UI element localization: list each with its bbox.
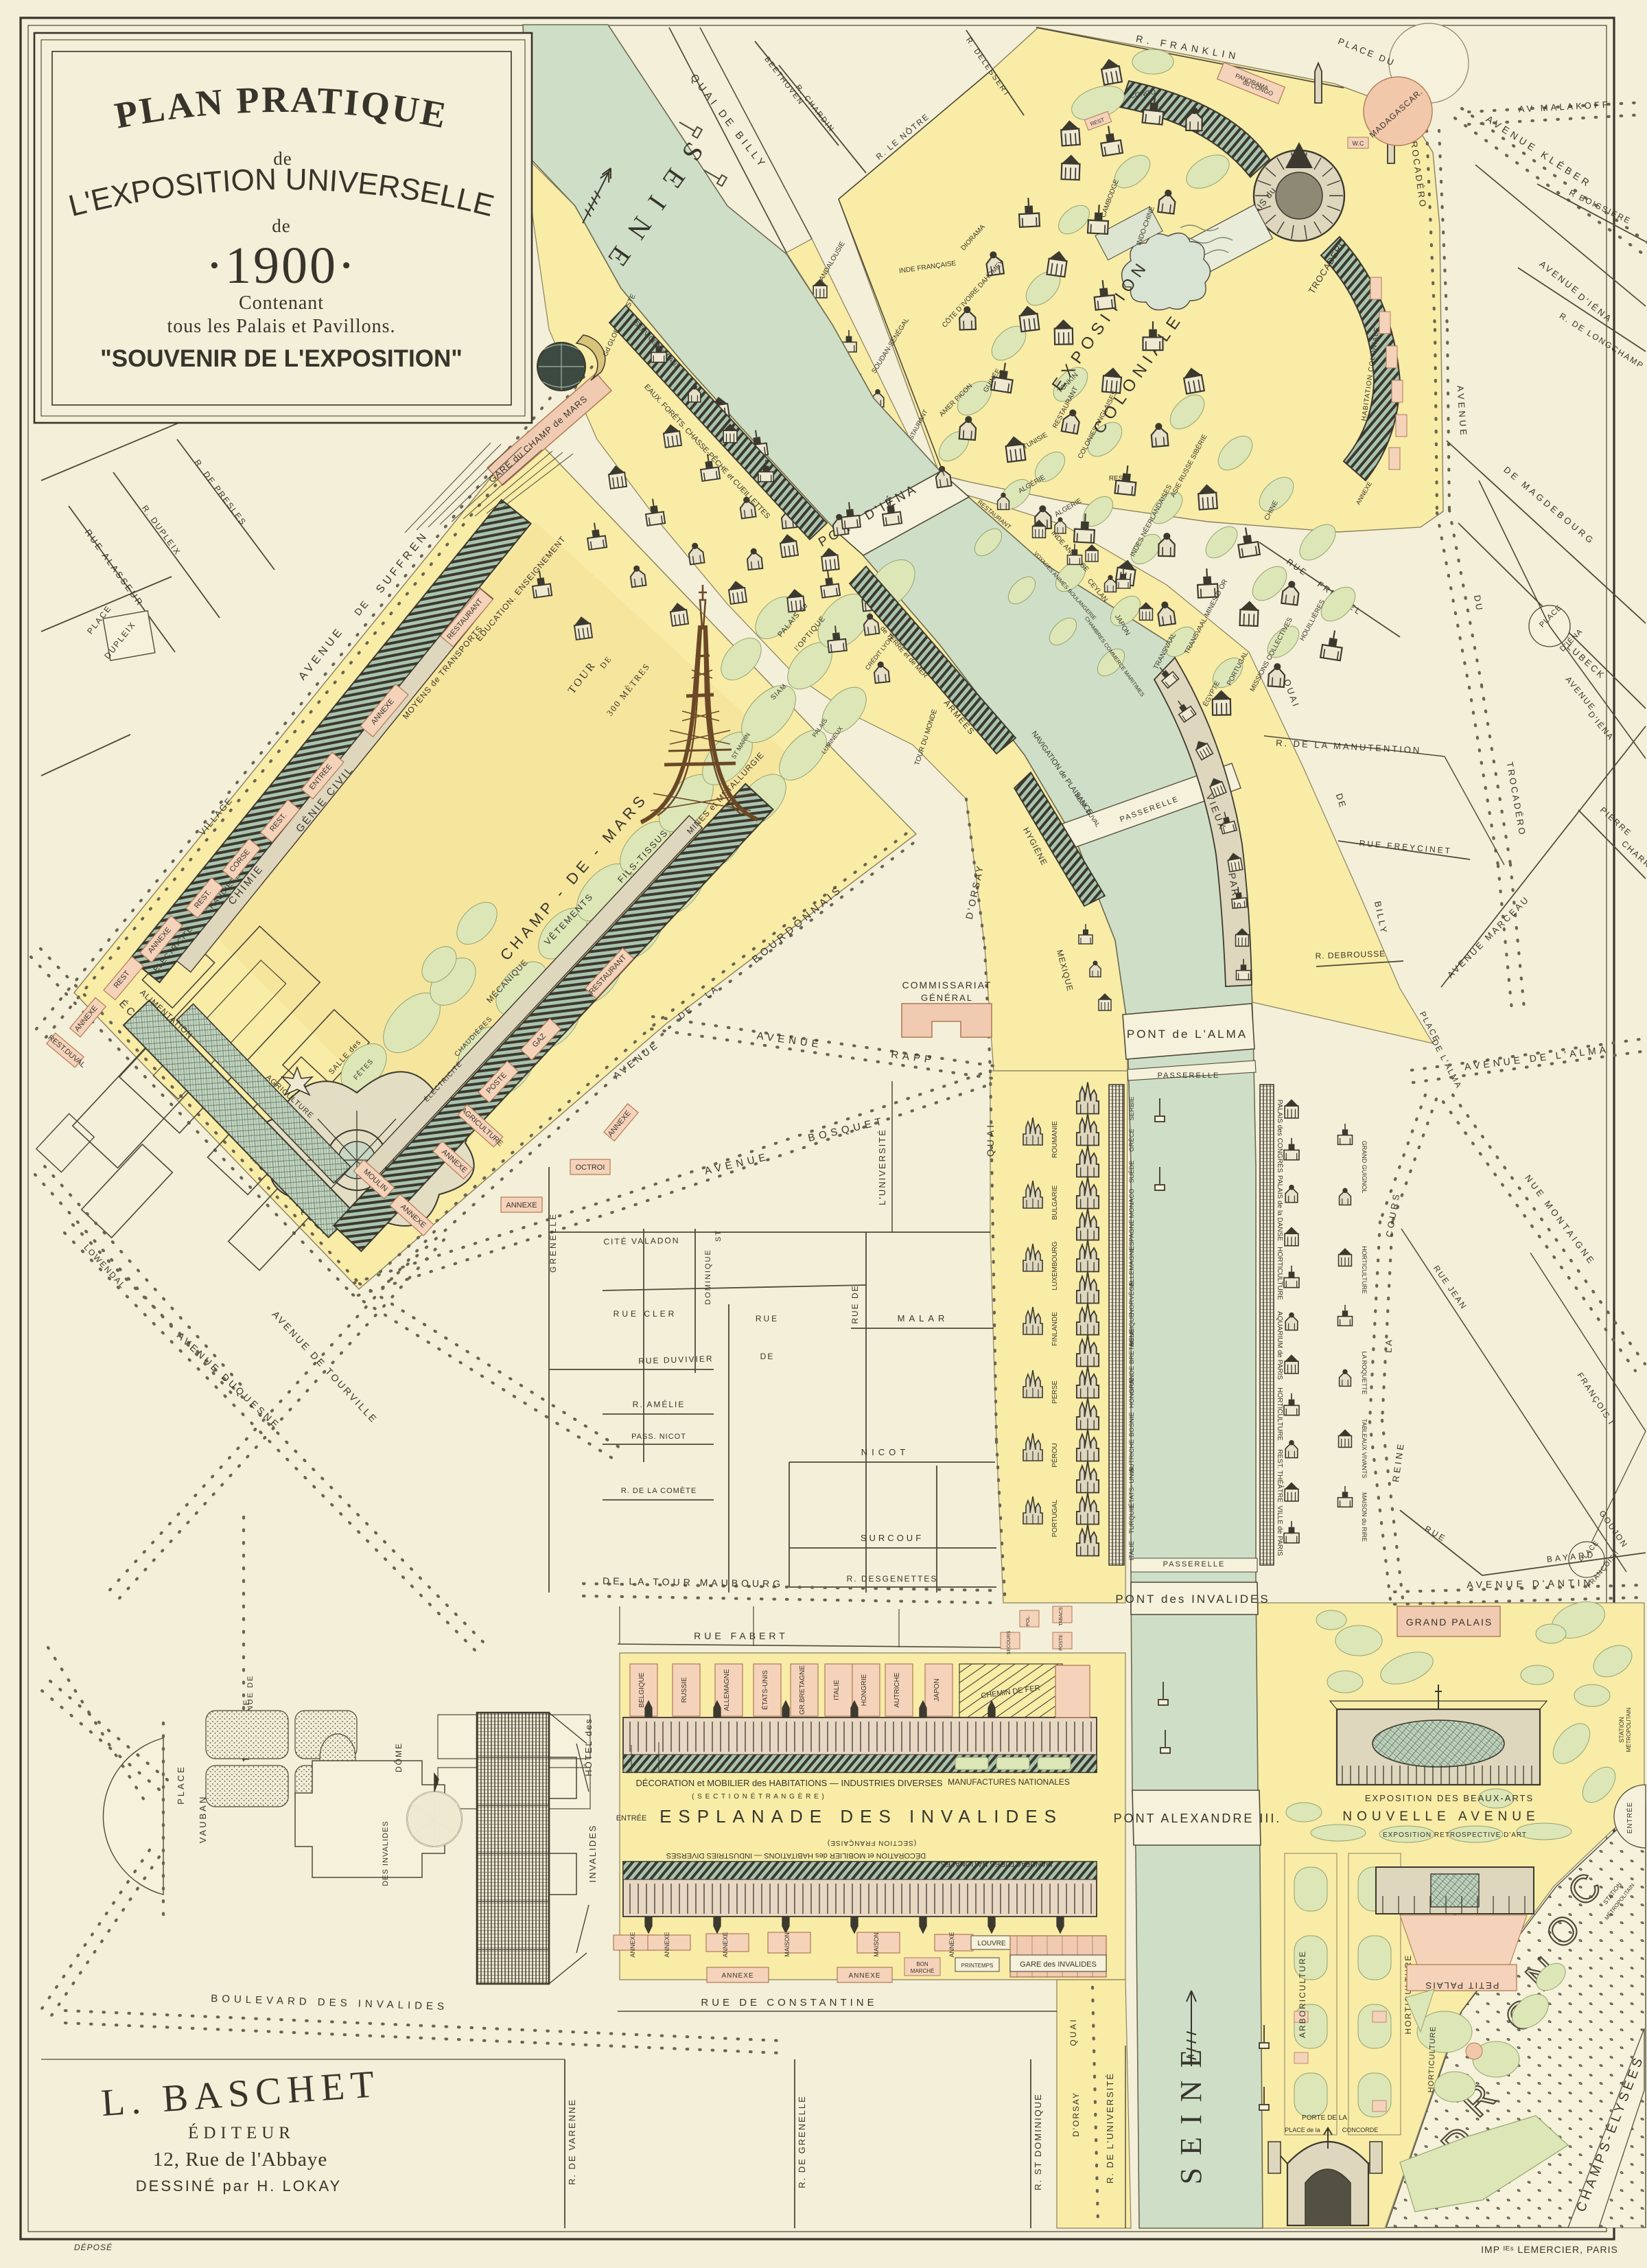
svg-text:(SECTION FRANÇAISE): (SECTION FRANÇAISE) (827, 1839, 916, 1847)
svg-text:BOSNIE: BOSNIE (1128, 1412, 1136, 1437)
svg-text:AUTRICHE: AUTRICHE (893, 1672, 901, 1707)
svg-text:ANNEXE: ANNEXE (721, 1972, 754, 1980)
svg-text:ST: ST (714, 1229, 723, 1242)
svg-text:BULGARIE: BULGARIE (1051, 1185, 1059, 1220)
svg-text:PASSERELLE: PASSERELLE (1163, 1560, 1226, 1569)
svg-text:GRAND PALAIS: GRAND PALAIS (1406, 1617, 1493, 1628)
svg-text:12, Rue de l'Abbaye: 12, Rue de l'Abbaye (153, 2149, 328, 2171)
svg-text:TURQUIE: TURQUIE (1128, 1505, 1136, 1534)
svg-text:DE: DE (760, 1352, 775, 1361)
svg-text:R. ST DOMINIQUE: R. ST DOMINIQUE (1033, 2093, 1043, 2190)
svg-text:SERBIE: SERBIE (1128, 1097, 1136, 1121)
svg-text:BELGIQUE: BELGIQUE (1128, 1313, 1136, 1347)
svg-text:REST.: REST. (1109, 475, 1128, 483)
svg-text:EXPOSITION DES BEAUX-ARTS: EXPOSITION DES BEAUX-ARTS (1365, 1793, 1534, 1803)
svg-text:R. DESGENETTES: R. DESGENETTES (847, 1574, 938, 1584)
svg-text:EXPOSITION RETROSPECTIVE D'A: EXPOSITION RETROSPECTIVE D'ART (1383, 1831, 1527, 1839)
svg-text:PLACE de la: PLACE de la (1285, 2127, 1320, 2133)
svg-text:COMMISSARIAT: COMMISSARIAT (902, 980, 992, 991)
svg-text:R. DE VARENNE: R. DE VARENNE (567, 2098, 577, 2185)
svg-text:CONCORDE: CONCORDE (1342, 2127, 1379, 2133)
svg-text:GRENELLE: GRENELLE (548, 1212, 558, 1273)
svg-text:ENTRÉE: ENTRÉE (616, 1814, 647, 1822)
svg-text:ANNEXE: ANNEXE (506, 1201, 537, 1210)
svg-text:L'UNIVERSITÉ: L'UNIVERSITÉ (877, 1129, 887, 1205)
svg-text:CITÉ VALADON: CITÉ VALADON (603, 1235, 679, 1247)
svg-text:POL.: POL. (1026, 1615, 1031, 1626)
svg-text:LA: LA (1383, 1338, 1394, 1353)
svg-text:PONT ALEXANDRE III.: PONT ALEXANDRE III. (1114, 1812, 1282, 1825)
svg-text:PERSE: PERSE (1051, 1380, 1059, 1404)
svg-text:RUE CLER: RUE CLER (614, 1309, 677, 1319)
svg-text:ÉDITEUR: ÉDITEUR (188, 2123, 295, 2142)
svg-text:MANUFACTURES NATIONALES: MANUFACTURES NATIONALES (948, 1777, 1070, 1787)
svg-text:RUE DE CONSTANTINE: RUE DE CONSTANTINE (701, 1997, 877, 2009)
svg-text:HONGRIE: HONGRIE (861, 1674, 868, 1706)
svg-text:QUAI: QUAI (1068, 2017, 1078, 2046)
svg-text:PASSERELLE: PASSERELLE (1158, 1072, 1220, 1080)
svg-text:ÉTATS- UNIS: ÉTATS- UNIS (1128, 1468, 1136, 1507)
svg-text:PONT des INVALIDES: PONT des INVALIDES (1115, 1593, 1270, 1606)
svg-text:FINLANDE: FINLANDE (1051, 1312, 1059, 1346)
svg-text:( S E C T I O N É T R A N G: ( S E C T I O N É T R A N G È R E ) (692, 1792, 825, 1801)
svg-text:INVALIDES: INVALIDES (587, 1825, 598, 1883)
svg-text:OCTROI: OCTROI (576, 1164, 605, 1172)
svg-text:PONT de L'ALMA: PONT de L'ALMA (1127, 1028, 1248, 1041)
svg-text:GARE des INVALIDES: GARE des INVALIDES (1020, 1960, 1097, 1969)
svg-text:R. AMÉLIE: R. AMÉLIE (633, 1399, 686, 1409)
svg-text:Contenant: Contenant (239, 292, 324, 314)
svg-text:MARCHÉ: MARCHÉ (911, 1968, 935, 1974)
svg-text:TABLEAUX VIVANTS: TABLEAUX VIVANTS (1361, 1419, 1368, 1479)
svg-text:ALLEMAGNE: ALLEMAGNE (1128, 1247, 1136, 1286)
svg-text:QUAI: QUAI (985, 1122, 996, 1157)
svg-text:LUXEMBOURG: LUXEMBOURG (1051, 1241, 1059, 1290)
svg-text:SUÈDE: SUÈDE (1128, 1161, 1136, 1183)
svg-text:MAISON: MAISON (784, 1932, 791, 1957)
svg-text:REST. THÉÂTRE: REST. THÉÂTRE (1276, 1449, 1285, 1503)
svg-text:tous les Palais et Pavillons.: tous les Palais et Pavillons. (167, 316, 395, 337)
svg-text:STATION: STATION (1618, 1717, 1625, 1743)
svg-text:BON: BON (916, 1961, 928, 1967)
svg-text:ALLEMAGNE: ALLEMAGNE (723, 1669, 731, 1711)
svg-text:VILLE de PARIS: VILLE de PARIS (1276, 1505, 1283, 1556)
svg-text:PALAIS des CONGRÈS: PALAIS des CONGRÈS (1276, 1100, 1285, 1173)
svg-text:DOMINIQUE: DOMINIQUE (704, 1249, 712, 1305)
svg-text:LOUVRE: LOUVRE (977, 1940, 1005, 1947)
svg-text:NOUVELLE AVENUE: NOUVELLE AVENUE (1342, 1809, 1539, 1824)
svg-text:GRÈCE: GRÈCE (1128, 1129, 1136, 1152)
svg-text:DÉCORATION et MOBILIER des HAB: DÉCORATION et MOBILIER des HABITATIONS —… (666, 1851, 926, 1860)
svg-text:ÉTATS-UNIS: ÉTATS-UNIS (760, 1670, 769, 1710)
svg-text:BELGIQUE: BELGIQUE (638, 1672, 646, 1707)
svg-text:DES INVALIDES: DES INVALIDES (382, 1820, 390, 1886)
svg-text:GR.BRETAGNE: GR.BRETAGNE (799, 1665, 806, 1715)
svg-text:DÉPOSÉ: DÉPOSÉ (74, 2242, 113, 2252)
svg-text:AQUARIUM de PARIS: AQUARIUM de PARIS (1276, 1311, 1283, 1380)
svg-text:PETIT PALAIS: PETIT PALAIS (1425, 1980, 1499, 1991)
svg-text:PÉROU: PÉROU (1050, 1443, 1059, 1468)
svg-text:LA ROQUETTE: LA ROQUETTE (1361, 1351, 1368, 1394)
svg-text:ANNEXE: ANNEXE (722, 1932, 729, 1957)
svg-text:MÉTROPOLITAIN: MÉTROPOLITAIN (1626, 1707, 1632, 1752)
svg-text:PORTE DE LA: PORTE DE LA (1302, 2114, 1347, 2122)
svg-text:RUE DE: RUE DE (850, 1284, 860, 1323)
svg-text:ROUMANIE: ROUMANIE (1051, 1121, 1059, 1158)
svg-text:ANNEXE: ANNEXE (629, 1932, 636, 1957)
svg-text:POSTE: POSTE (1059, 1634, 1064, 1651)
svg-text:PORTUGAL: PORTUGAL (1051, 1499, 1059, 1537)
svg-text:·1900·: ·1900· (206, 237, 358, 294)
svg-text:R. DE L'UNIVERSITÉ: R. DE L'UNIVERSITÉ (1105, 2072, 1115, 2184)
svg-text:PLACE: PLACE (176, 1765, 186, 1805)
svg-text:ANNEXE: ANNEXE (848, 1972, 880, 1980)
svg-text:ITALIE: ITALIE (1128, 1541, 1136, 1560)
svg-text:SURCOUF: SURCOUF (861, 1533, 924, 1543)
svg-text:D'ORSAY: D'ORSAY (1071, 2092, 1081, 2137)
svg-text:MAISON: MAISON (873, 1932, 880, 1957)
svg-text:DÉCORATION et MOBILIER des HAB: DÉCORATION et MOBILIER des HABITATIONS —… (635, 1778, 942, 1788)
svg-text:ITALIE: ITALIE (833, 1680, 841, 1700)
svg-text:MANUFACTURES NATIONALES: MANUFACTURES NATIONALES (941, 1860, 1053, 1868)
svg-text:SECOURS: SECOURS (1007, 1630, 1012, 1654)
svg-text:R. DE LA COMÈTE: R. DE LA COMÈTE (621, 1486, 697, 1495)
svg-text:de: de (272, 216, 290, 236)
svg-text:ESPLANADE DES INVALIDES: ESPLANADE DES INVALIDES (659, 1806, 1063, 1827)
svg-text:HORTICULTURE: HORTICULTURE (1276, 1387, 1283, 1441)
svg-text:VAUBAN: VAUBAN (198, 1795, 208, 1844)
svg-text:DÔME: DÔME (393, 1742, 404, 1772)
svg-text:DESSINÉ par H. LOKAY: DESSINÉ par H. LOKAY (136, 2177, 342, 2195)
svg-text:ENTRÉE: ENTRÉE (1625, 1802, 1634, 1834)
svg-text:W.C: W.C (1353, 140, 1364, 147)
svg-text:AUTRICHE: AUTRICHE (1128, 1439, 1136, 1473)
svg-text:ESPAGNE: ESPAGNE (1128, 1219, 1136, 1250)
svg-text:MAISON du RIRE: MAISON du RIRE (1361, 1492, 1368, 1542)
svg-text:ARBORICULTURE: ARBORICULTURE (1298, 1950, 1307, 2038)
svg-text:HORTICULTURE: HORTICULTURE (1361, 1246, 1368, 1294)
svg-text:ANNEXE: ANNEXE (664, 1932, 670, 1957)
svg-text:PASS. NICOT: PASS. NICOT (631, 1433, 686, 1441)
svg-text:PALAIS de la DANSE: PALAIS de la DANSE (1276, 1175, 1283, 1241)
svg-text:MONACO: MONACO (1128, 1189, 1136, 1218)
svg-text:GRAND GUIGNOL: GRAND GUIGNOL (1361, 1141, 1368, 1194)
svg-text:TABACS: TABACS (1059, 1607, 1064, 1626)
svg-text:R. DE GRENELLE: R. DE GRENELLE (797, 2095, 807, 2188)
svg-text:JAPON: JAPON (933, 1678, 941, 1701)
svg-text:RUSSIE: RUSSIE (681, 1677, 688, 1703)
svg-text:MALAR: MALAR (898, 1313, 949, 1323)
svg-text:RUE FABERT: RUE FABERT (694, 1630, 789, 1641)
svg-text:ANNEXE: ANNEXE (948, 1932, 955, 1957)
svg-text:HORTICULTURE: HORTICULTURE (1276, 1247, 1283, 1300)
svg-text:NICOT: NICOT (861, 1447, 909, 1457)
svg-text:RUE: RUE (756, 1314, 779, 1323)
svg-text:IMP ᴵᴱˢ LEMERCIER, PARIS: IMP ᴵᴱˢ LEMERCIER, PARIS (1481, 2244, 1618, 2255)
svg-text:"SOUVENIR DE L'EXPOSITION": "SOUVENIR DE L'EXPOSITION" (100, 345, 463, 372)
svg-text:AVENUE D'ANTIN: AVENUE D'ANTIN (1467, 1577, 1593, 1590)
svg-text:GÉNÉRAL: GÉNÉRAL (921, 993, 973, 1003)
svg-text:HÔTEL des: HÔTEL des (583, 1717, 594, 1776)
svg-text:PRINTEMPS: PRINTEMPS (961, 1963, 994, 1969)
